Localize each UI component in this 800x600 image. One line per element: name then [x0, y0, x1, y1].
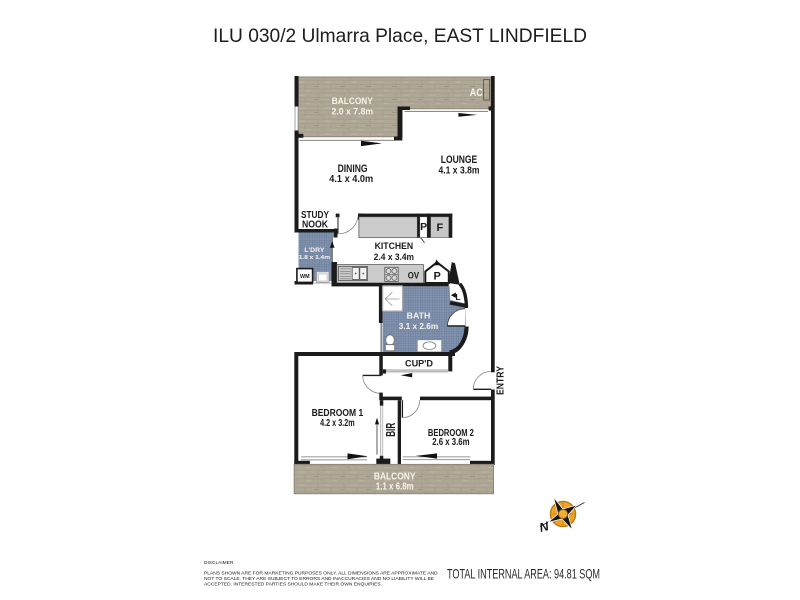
svg-text:CUP'D: CUP'D [405, 358, 433, 369]
svg-text:L'DRY: L'DRY [304, 247, 325, 254]
svg-text:2.0 x 7.8m: 2.0 x 7.8m [332, 106, 374, 116]
svg-text:P: P [434, 271, 441, 283]
svg-text:BATH: BATH [407, 311, 431, 321]
svg-text:DISCLAIMER: DISCLAIMER [204, 560, 234, 566]
svg-text:ACCEPTED. INTERESTED PARTIES S: ACCEPTED. INTERESTED PARTIES SHOULD MAKE… [204, 581, 382, 587]
svg-text:2.4 x 3.4m: 2.4 x 3.4m [374, 252, 414, 262]
svg-text:OV: OV [408, 270, 419, 280]
svg-text:TOTAL INTERNAL AREA: 94.81 SQM: TOTAL INTERNAL AREA: 94.81 SQM [447, 566, 600, 581]
svg-text:P: P [420, 221, 427, 233]
svg-text:NOOK: NOOK [302, 219, 328, 230]
svg-text:ENTRY: ENTRY [495, 366, 506, 395]
svg-text:ILU 030/2 Ulmarra Place, EAST: ILU 030/2 Ulmarra Place, EAST LINDFIELD [213, 25, 587, 47]
svg-text:BALCONY: BALCONY [332, 96, 374, 106]
svg-text:PLANS SHOWN ARE FOR MARKETING: PLANS SHOWN ARE FOR MARKETING PURPOSES O… [204, 570, 438, 576]
svg-text:1.8 x 1.4m: 1.8 x 1.4m [299, 255, 330, 261]
svg-text:WM: WM [300, 274, 310, 280]
svg-text:L: L [455, 292, 460, 302]
svg-text:4.1 x 3.8m: 4.1 x 3.8m [439, 165, 480, 176]
svg-text:3.1 x 2.6m: 3.1 x 2.6m [399, 321, 439, 331]
svg-text:KITCHEN: KITCHEN [375, 241, 414, 251]
svg-text:BIR: BIR [384, 423, 398, 437]
svg-text:AC: AC [470, 87, 483, 99]
svg-text:2.6 x 3.6m: 2.6 x 3.6m [432, 437, 470, 448]
svg-text:F: F [437, 222, 444, 234]
svg-text:NOT TO SCALE. THEY ARE SUBJECT: NOT TO SCALE. THEY ARE SUBJECT TO ERRORS… [204, 576, 435, 582]
svg-text:4.1 x 4.0m: 4.1 x 4.0m [329, 174, 373, 185]
svg-text:4.2 x 3.2m: 4.2 x 3.2m [320, 418, 355, 429]
svg-text:1.1 x 6.8m: 1.1 x 6.8m [376, 481, 414, 492]
